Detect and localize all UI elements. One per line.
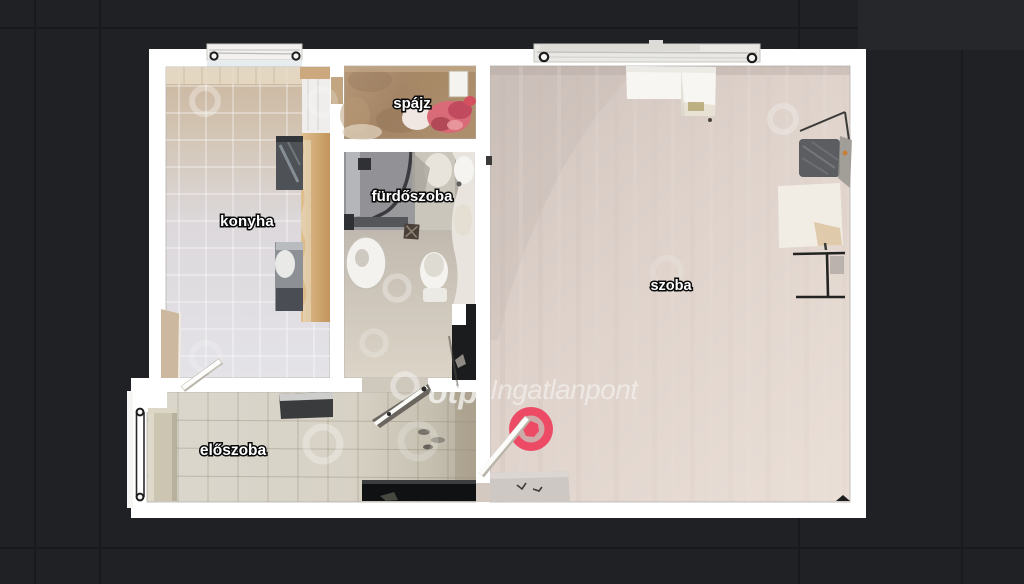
- svg-text:előszoba: előszoba: [200, 442, 267, 459]
- svg-text:Ingatlanpont: Ingatlanpont: [490, 374, 639, 405]
- svg-text:spájz: spájz: [393, 95, 431, 112]
- svg-text:szoba: szoba: [650, 278, 692, 294]
- svg-text:fürdőszoba: fürdőszoba: [372, 188, 453, 205]
- svg-text:konyha: konyha: [220, 213, 274, 230]
- svg-text:otp: otp: [428, 374, 478, 410]
